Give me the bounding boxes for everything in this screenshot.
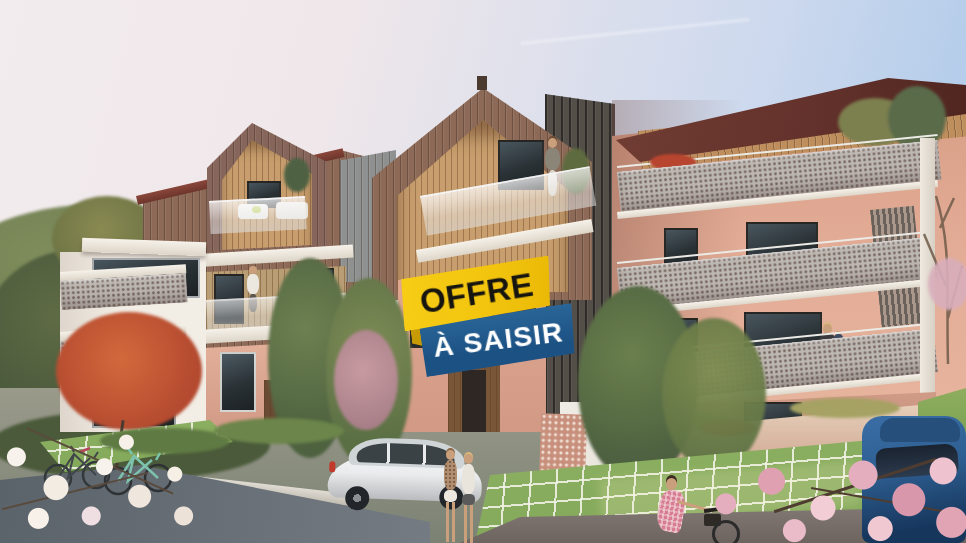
torso xyxy=(247,274,259,294)
legs xyxy=(446,502,449,542)
blossom-cluster xyxy=(0,420,210,543)
promo-badge[interactable]: À SAISIR OFFRE xyxy=(389,232,590,394)
car-wheel xyxy=(345,486,370,511)
head xyxy=(249,266,257,274)
legs xyxy=(464,505,467,543)
shorts xyxy=(444,490,457,502)
torso xyxy=(444,460,457,490)
pink-shrub-center xyxy=(334,330,398,430)
garden-grasses-2 xyxy=(790,398,900,418)
pink-blossom-tree xyxy=(620,440,966,543)
white-blossom-branch xyxy=(0,420,210,543)
head xyxy=(464,454,473,464)
car-roof xyxy=(880,418,960,442)
hedge-2 xyxy=(214,418,344,444)
left-gable-frosted-railing xyxy=(209,196,307,234)
shorts xyxy=(462,494,475,505)
blossom-cluster xyxy=(680,440,966,543)
left-gable-plant xyxy=(284,158,310,192)
left-ground-window xyxy=(220,352,256,412)
pedestrian-2 xyxy=(460,454,477,543)
architectural-render: À SAISIR OFFRE xyxy=(0,0,966,543)
torso xyxy=(462,464,475,494)
head xyxy=(548,138,557,148)
red-leaf-tree xyxy=(56,312,202,430)
badge-line2-text: À SAISIR xyxy=(431,316,565,364)
car-taillight xyxy=(329,461,335,472)
head xyxy=(446,450,455,460)
pedestrian-1 xyxy=(442,450,459,543)
distant-pink-blossom xyxy=(928,258,966,310)
torso xyxy=(545,148,560,170)
center-gable-finial xyxy=(477,76,487,90)
